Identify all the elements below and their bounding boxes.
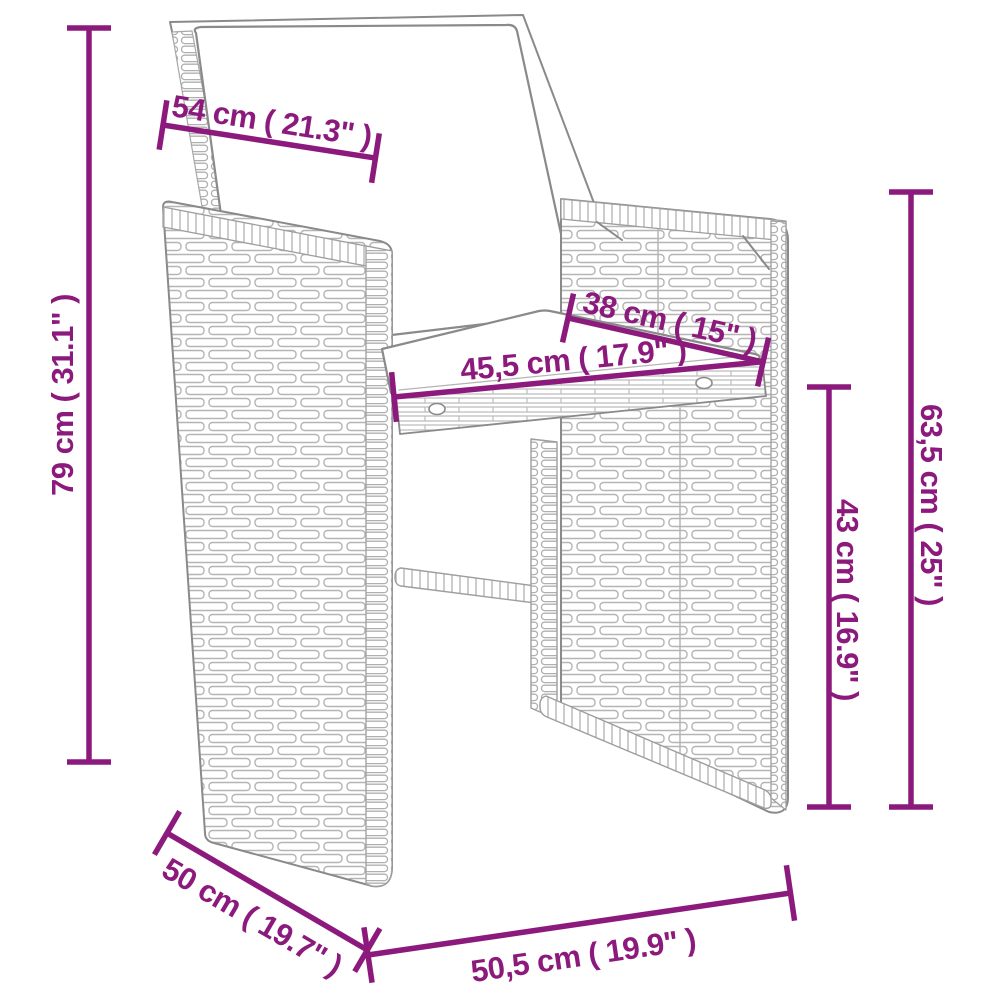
left-side-panel	[163, 202, 392, 887]
seat-screw-cap-right	[696, 378, 712, 389]
crossbar	[395, 568, 549, 604]
dimension-tick	[154, 811, 179, 854]
dimension-base-width: 50,5 cm ( 19.9" )	[364, 865, 798, 1000]
dimension-label: 79 cm ( 31.1" )	[45, 294, 80, 496]
dimension-armrest-height: 63,5 cm ( 25" )	[889, 192, 949, 807]
front-right-leg	[531, 439, 557, 713]
dimension-label: 50,5 cm ( 19.9" )	[469, 921, 698, 989]
dimension-label: 63,5 cm ( 25" )	[914, 404, 949, 606]
diagram-canvas: 54 cm ( 21.3" ) 79 cm ( 31.1" ) 38 cm ( …	[0, 0, 1000, 1000]
product-dimension-diagram: 54 cm ( 21.3" ) 79 cm ( 31.1" ) 38 cm ( …	[0, 0, 1000, 1000]
chair-illustration	[163, 15, 788, 886]
left-panel-front-roll	[366, 246, 392, 886]
right-panel-edge-roll	[771, 221, 786, 810]
dimension-total-height: 79 cm ( 31.1" )	[45, 28, 111, 762]
dimension-label: 43 cm ( 16.9" )	[830, 499, 865, 701]
dimension-seat-height: 43 cm ( 16.9" )	[807, 387, 865, 807]
seat-screw-cap-left	[429, 404, 445, 415]
dimension-tick	[159, 100, 167, 149]
